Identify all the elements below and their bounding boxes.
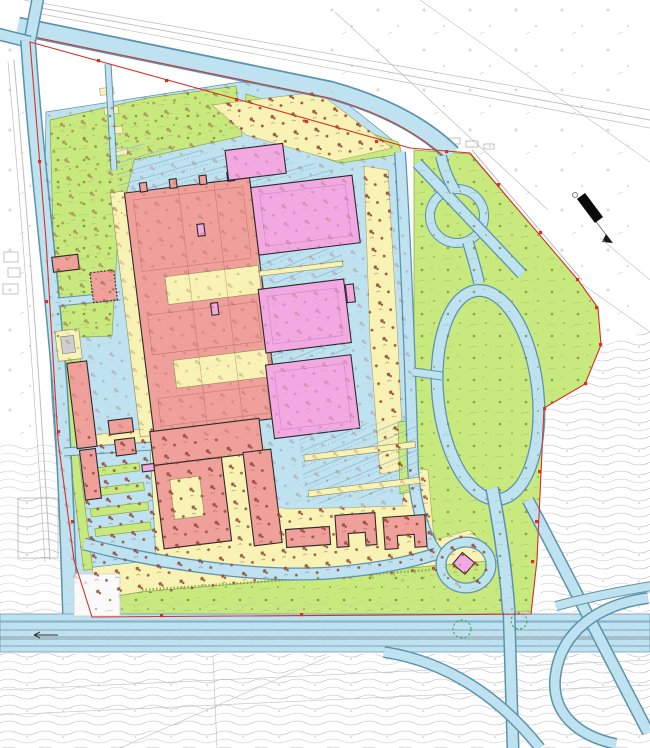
- site-plan-canvas: [0, 0, 650, 748]
- existing-structures-sw: [18, 498, 58, 558]
- highway-texture: [0, 622, 650, 652]
